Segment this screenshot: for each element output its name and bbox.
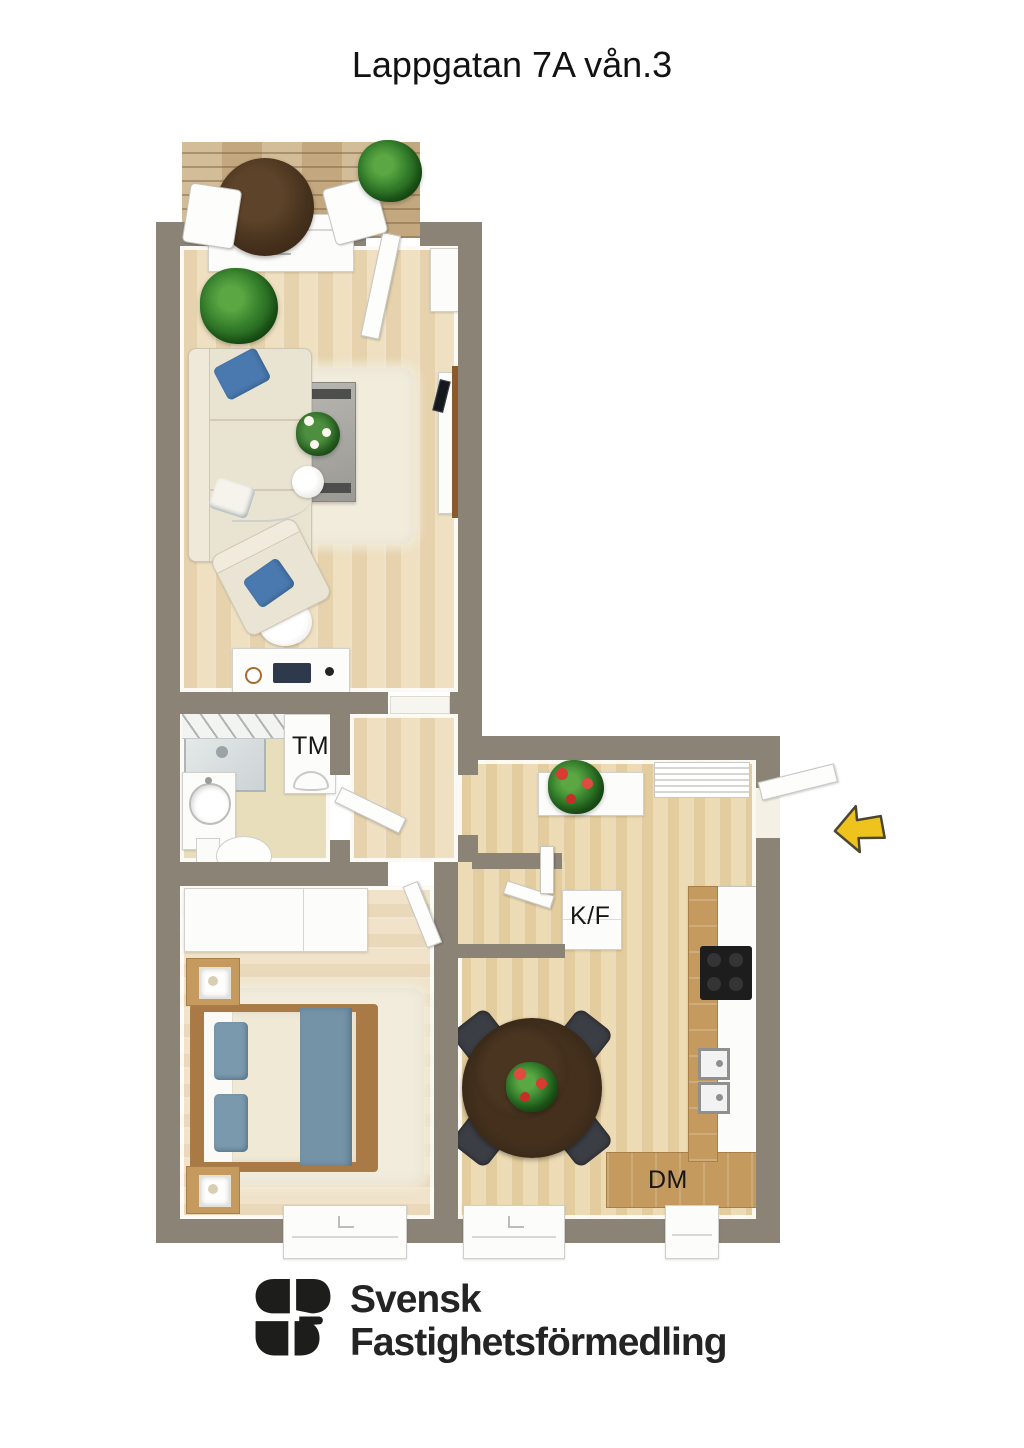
hallway-floor: [350, 714, 458, 862]
wardrobe-divider: [303, 889, 304, 951]
wall-living-bottom-a: [352, 692, 388, 714]
burner-4: [729, 977, 743, 991]
desk-lamp: [325, 667, 334, 676]
shower-drain: [216, 746, 228, 758]
red-flower-1: [556, 768, 568, 780]
small-window: [665, 1205, 719, 1259]
small-window-sill: [672, 1234, 712, 1236]
burner-3: [707, 977, 721, 991]
page-title: Lappgatan 7A vån.3: [0, 44, 1024, 86]
laptop: [273, 663, 311, 683]
kitchen-counter-wood-front: [688, 886, 718, 1162]
kitchen-window-handle: [508, 1216, 524, 1228]
orchid-flower-2: [322, 428, 331, 437]
sink-basin-2: [698, 1082, 730, 1114]
orchid-plant: [296, 412, 340, 456]
bedroom-window: [283, 1205, 407, 1259]
agency-logo: Svensk Fastighetsförmedling: [254, 1276, 727, 1364]
red-flower-2: [582, 778, 593, 789]
living-hall-threshold: [390, 696, 450, 714]
wall-bath-right-b: [330, 840, 350, 862]
orchid-flower-3: [310, 440, 319, 449]
sink-basin-1: [698, 1048, 730, 1080]
washer-door-arc: [293, 771, 329, 791]
wall-bottom-d: [717, 1219, 780, 1243]
wall-right-kitchen-b: [756, 838, 780, 1243]
wall-right-living: [458, 222, 482, 760]
wall-left: [156, 222, 180, 1243]
table-flower-2: [536, 1078, 547, 1089]
washing-machine-label: TM: [292, 732, 329, 761]
sink-bowl: [189, 783, 231, 825]
wall-bottom-b: [405, 1219, 463, 1243]
burner-2: [729, 953, 743, 967]
kitchen-window: [463, 1205, 565, 1259]
vestibule-door-leaf-2: [540, 846, 554, 894]
floorplan-page: Lappgatan 7A vån.3: [0, 0, 1024, 1448]
logo-line-1: Svensk: [350, 1278, 727, 1321]
orchid-flower-1: [304, 416, 314, 426]
wall-bottom-c: [563, 1219, 665, 1243]
sideboard-plant: [548, 760, 604, 814]
entrance-arrow-icon: [829, 798, 888, 865]
bed-pillow-1: [214, 1022, 248, 1080]
sink-drain-2: [716, 1094, 723, 1101]
balcony-chair-left: [182, 182, 243, 249]
wall-bath-top: [156, 692, 352, 714]
dining-table-plant: [506, 1062, 558, 1112]
wall-kitchen-top: [458, 736, 780, 760]
lamp-bulb-top: [208, 976, 218, 986]
wall-bath-right-a: [330, 714, 350, 775]
bedroom-window-handle: [338, 1216, 354, 1228]
logo-line-2: Fastighetsförmedling: [350, 1321, 727, 1364]
nightstand-bottom: [186, 1166, 240, 1214]
balcony-plant: [358, 140, 422, 202]
floor-lamp-shade: [292, 466, 324, 498]
living-closet: [430, 248, 460, 312]
wall-bedroom-right: [434, 862, 458, 1219]
lamp-bulb-bottom: [208, 1184, 218, 1194]
dishwasher-label: DM: [648, 1166, 688, 1195]
stove: [700, 946, 752, 1000]
table-flower-1: [514, 1068, 526, 1080]
wall-living-bottom-b: [450, 692, 458, 714]
wall-bottom-a: [156, 1219, 283, 1243]
bed-pillow-2: [214, 1094, 248, 1152]
nightstand-top: [186, 958, 240, 1006]
sofa-backrest: [189, 349, 210, 561]
sofa-cushion-line-1: [209, 419, 309, 421]
wall-vestibule-bottom: [445, 944, 565, 958]
radiator: [654, 762, 750, 798]
wall-bedroom-top-a: [156, 862, 388, 886]
sink-drain-1: [716, 1060, 723, 1067]
fridge-freezer-label: K/F: [570, 902, 610, 931]
kitchen-window-sill: [472, 1236, 556, 1238]
burner-1: [707, 953, 721, 967]
red-flower-3: [566, 794, 576, 804]
agency-logo-text: Svensk Fastighetsförmedling: [350, 1278, 727, 1364]
wall-hall-right-a: [458, 760, 478, 775]
sf-monogram-icon: [254, 1276, 332, 1360]
table-flower-3: [520, 1092, 530, 1102]
bed-runner: [300, 1008, 352, 1166]
desk: [232, 648, 350, 696]
bedroom-wardrobe: [184, 888, 368, 952]
coffee-cup: [245, 667, 262, 684]
sink-faucet: [205, 777, 212, 784]
bedroom-window-sill: [292, 1236, 398, 1238]
living-room-plant: [200, 268, 278, 344]
